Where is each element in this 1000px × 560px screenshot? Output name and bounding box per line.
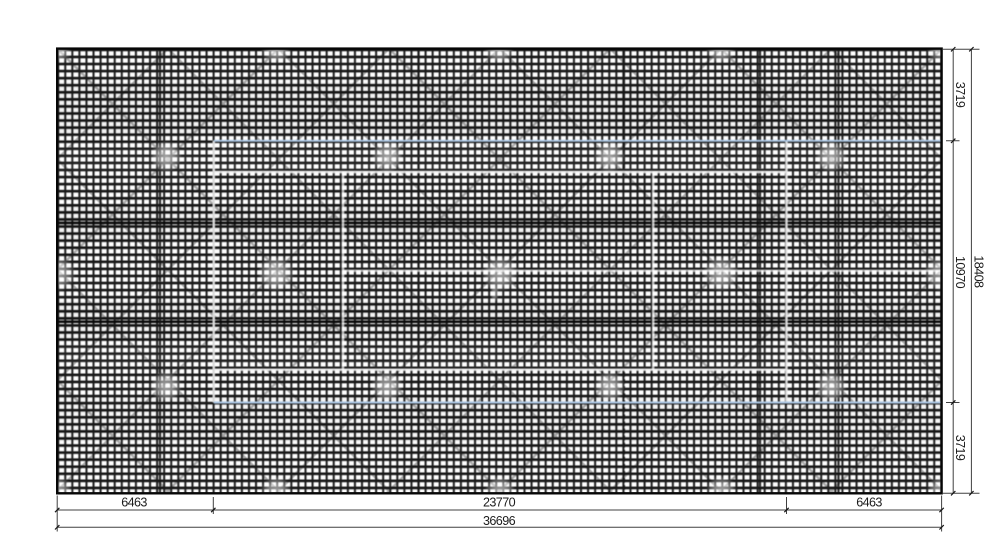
- svg-text:6463: 6463: [121, 496, 147, 510]
- svg-text:6463: 6463: [856, 496, 882, 510]
- svg-text:3719: 3719: [953, 82, 967, 108]
- svg-text:18408: 18408: [972, 255, 986, 288]
- svg-text:36696: 36696: [483, 514, 516, 528]
- svg-text:23770: 23770: [483, 496, 516, 510]
- svg-text:10970: 10970: [953, 256, 967, 289]
- svg-text:3719: 3719: [953, 435, 967, 461]
